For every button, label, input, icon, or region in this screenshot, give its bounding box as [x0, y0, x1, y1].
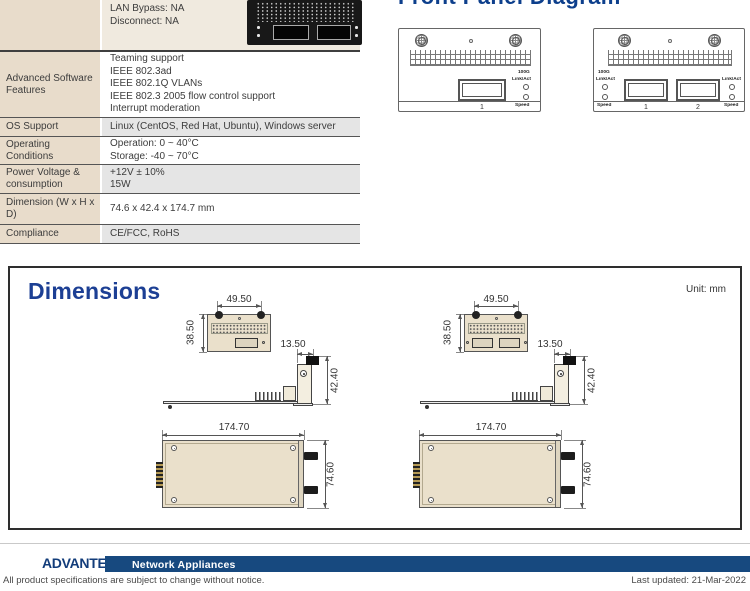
dim-side-width: 13.50	[530, 339, 570, 350]
pcb-outline	[165, 443, 301, 505]
sfp-cage-1	[624, 79, 668, 101]
spec-line: Interrupt moderation	[110, 103, 358, 116]
side-view-baseplate	[163, 401, 303, 404]
footer-notice: All product specifications are subject t…	[3, 575, 264, 586]
spec-value: +12V ± 10% 15W	[102, 165, 360, 193]
connector-teeth	[255, 392, 281, 401]
port-number: 2	[696, 104, 700, 111]
vent-grid	[468, 323, 525, 334]
dimension-line	[460, 314, 461, 352]
last-updated: Last updated: 21-Mar-2022	[631, 575, 746, 586]
spec-label: Dimension (W x H x D)	[0, 194, 102, 224]
center-hole-icon	[469, 39, 473, 43]
footer-divider	[0, 543, 750, 544]
spec-value: CE/FCC, RoHS	[102, 225, 360, 243]
thumbscrew	[304, 452, 318, 460]
table-row: Power Voltage & consumption +12V ± 10% 1…	[0, 164, 360, 193]
table-row: OS Support Linux (CentOS, Red Hat, Ubunt…	[0, 117, 360, 136]
rate-label: 100G	[518, 70, 530, 75]
led-dot	[257, 34, 260, 37]
front-view-drawing	[207, 314, 271, 352]
bracket-foot	[550, 403, 570, 406]
bracket-strip	[298, 441, 303, 507]
dimension-line	[203, 314, 204, 352]
extension-line	[304, 430, 305, 440]
extension-line	[564, 508, 586, 509]
bracket-strip	[555, 441, 560, 507]
side-view-latch	[306, 356, 319, 365]
dim-side-height: 42.40	[587, 361, 598, 401]
screw-icon	[524, 341, 527, 344]
spec-line: Linux (CentOS, Red Hat, Ubuntu), Windows…	[110, 121, 358, 134]
module-photo	[247, 0, 362, 45]
port-cutout	[499, 338, 520, 348]
dim-top-width: 74.60	[326, 455, 337, 495]
screw-icon	[428, 445, 434, 451]
footer-bar: Network Appliances	[105, 556, 750, 572]
vent-grid	[211, 323, 268, 334]
drawing-set-1port: 49.50 38.50 13.50	[155, 294, 350, 516]
screw-icon	[290, 497, 296, 503]
link-act-label: Link/Act	[722, 77, 741, 82]
extension-line	[570, 404, 588, 405]
series-label: Network Appliances	[132, 559, 236, 571]
top-view-drawing	[162, 440, 304, 508]
table-row: Compliance CE/FCC, RoHS	[0, 224, 360, 243]
speed-led-icon	[523, 94, 529, 100]
screw-icon	[171, 497, 177, 503]
dimension-line	[297, 354, 313, 355]
spec-line: Teaming support	[110, 53, 358, 66]
unit-label: Unit: mm	[686, 284, 726, 295]
spec-line: 15W	[110, 179, 358, 192]
screw-icon	[168, 405, 172, 409]
screw-icon	[300, 370, 307, 377]
led-dot	[355, 34, 358, 37]
bracket-flange	[399, 101, 540, 102]
thumbscrew	[304, 486, 318, 494]
spec-value: Operation: 0 ~ 40°C Storage: -40 ~ 70°C	[102, 137, 360, 164]
dim-front-height: 38.50	[186, 313, 197, 353]
pcb-outline	[422, 443, 558, 505]
thumbscrew	[561, 452, 575, 460]
port-cutout	[472, 338, 493, 348]
port-number: 1	[480, 104, 484, 111]
port-number: 1	[644, 104, 648, 111]
top-view-drawing	[419, 440, 561, 508]
vent-grid	[410, 50, 531, 66]
card-edge-connector	[156, 462, 163, 488]
screw-icon	[509, 34, 522, 47]
side-view-block	[283, 386, 296, 401]
card-edge-connector	[413, 462, 420, 488]
screw-icon	[514, 311, 522, 319]
dimensions-title: Dimensions	[28, 278, 160, 305]
speed-label: Speed	[597, 103, 611, 108]
screw-icon	[557, 370, 564, 377]
extension-line	[456, 352, 464, 353]
spec-value: 74.6 x 42.4 x 174.7 mm	[102, 194, 360, 224]
table-row: Dimension (W x H x D) 74.6 x 42.4 x 174.…	[0, 193, 360, 224]
extension-line	[561, 430, 562, 440]
dimension-line	[162, 435, 304, 436]
screw-icon	[425, 405, 429, 409]
vent-grid	[608, 50, 732, 66]
dimension-line	[217, 306, 261, 307]
speed-led-icon	[729, 94, 735, 100]
bracket-foot	[293, 403, 313, 406]
screw-icon	[171, 445, 177, 451]
spec-label: Advanced Software Features	[0, 52, 102, 117]
dimension-line	[584, 356, 585, 404]
spec-line: CE/FCC, RoHS	[110, 228, 358, 241]
dimensions-section: Dimensions Unit: mm 49.50 38.50 13.50	[8, 266, 742, 530]
spec-line: +12V ± 10%	[110, 167, 358, 180]
screw-icon	[262, 341, 265, 344]
dim-side-width: 13.50	[273, 339, 313, 350]
screw-icon	[428, 497, 434, 503]
sfp-cage-2	[676, 79, 720, 101]
front-panel-diagram-2port: 100G Link/Act Speed 1 2 Link/Act Speed	[593, 28, 745, 112]
dimension-line	[419, 435, 561, 436]
table-row: Advanced Software Features Teaming suppo…	[0, 50, 360, 117]
spec-label: Power Voltage & consumption	[0, 165, 102, 193]
spec-value: Teaming support IEEE 802.3ad IEEE 802.1Q…	[102, 52, 360, 117]
speed-label: Speed	[515, 103, 529, 108]
speed-led-icon	[602, 94, 608, 100]
screw-icon	[215, 311, 223, 319]
front-panel-diagram-1port: 100G Link/Act Speed 1	[398, 28, 541, 112]
dim-top-length: 174.70	[212, 422, 256, 433]
spec-label: Operating Conditions	[0, 137, 102, 164]
spec-value: Linux (CentOS, Red Hat, Ubuntu), Windows…	[102, 118, 360, 136]
dimension-line	[327, 356, 328, 404]
dim-top-length: 174.70	[469, 422, 513, 433]
port-opening	[273, 25, 309, 40]
dim-side-height: 42.40	[330, 361, 341, 401]
spec-line: IEEE 802.3ad	[110, 66, 358, 79]
led-dot	[257, 26, 260, 29]
table-row: Operating Conditions Operation: 0 ~ 40°C…	[0, 136, 360, 164]
front-panel-title: Front Panel Diagram	[398, 0, 621, 10]
sfp-cage-1	[458, 79, 506, 101]
link-led-icon	[523, 84, 529, 90]
spec-line: IEEE 802.1Q VLANs	[110, 78, 358, 91]
extension-line	[313, 404, 331, 405]
link-led-icon	[729, 84, 735, 90]
bracket-flange	[594, 101, 744, 102]
dim-front-width: 49.50	[474, 294, 518, 305]
vent-holes	[256, 2, 354, 22]
side-view-baseplate	[420, 401, 560, 404]
spec-line: Storage: -40 ~ 70°C	[110, 151, 358, 164]
spec-line: IEEE 802.3 2005 flow control support	[110, 91, 358, 104]
extension-line	[199, 352, 207, 353]
center-hole-icon	[495, 317, 498, 320]
screw-icon	[547, 497, 553, 503]
center-hole-icon	[668, 39, 672, 43]
screw-icon	[415, 34, 428, 47]
dim-front-height: 38.50	[443, 313, 454, 353]
screw-icon	[708, 34, 721, 47]
screw-icon	[547, 445, 553, 451]
spec-line: 74.6 x 42.4 x 174.7 mm	[110, 203, 358, 216]
screw-icon	[618, 34, 631, 47]
side-view-block	[540, 386, 553, 401]
link-act-label: Link/Act	[596, 77, 615, 82]
screw-icon	[290, 445, 296, 451]
spec-line: Operation: 0 ~ 40°C	[110, 138, 358, 151]
side-view-latch	[563, 356, 576, 365]
extension-line	[307, 508, 329, 509]
screw-icon	[257, 311, 265, 319]
thumbscrew	[561, 486, 575, 494]
port-cutout	[235, 338, 258, 348]
spec-label	[0, 0, 102, 50]
link-act-label: Link/Act	[512, 77, 531, 82]
dimension-line	[474, 306, 518, 307]
spec-label: Compliance	[0, 225, 102, 243]
led-dot	[355, 26, 358, 29]
front-view-drawing	[464, 314, 528, 352]
link-led-icon	[602, 84, 608, 90]
speed-label: Speed	[724, 103, 738, 108]
rate-label: 100G	[598, 70, 610, 75]
screw-icon	[466, 341, 469, 344]
spec-label: OS Support	[0, 118, 102, 136]
dimension-line	[554, 354, 570, 355]
dim-front-width: 49.50	[217, 294, 261, 305]
center-hole-icon	[238, 317, 241, 320]
screw-icon	[472, 311, 480, 319]
datasheet-page: LAN Bypass: NA Disconnect: NA Advanced S…	[0, 0, 750, 591]
drawing-set-2port: 49.50 38.50 13.50	[412, 294, 607, 516]
dim-top-width: 74.60	[583, 455, 594, 495]
connector-teeth	[512, 392, 538, 401]
port-opening	[317, 25, 351, 40]
